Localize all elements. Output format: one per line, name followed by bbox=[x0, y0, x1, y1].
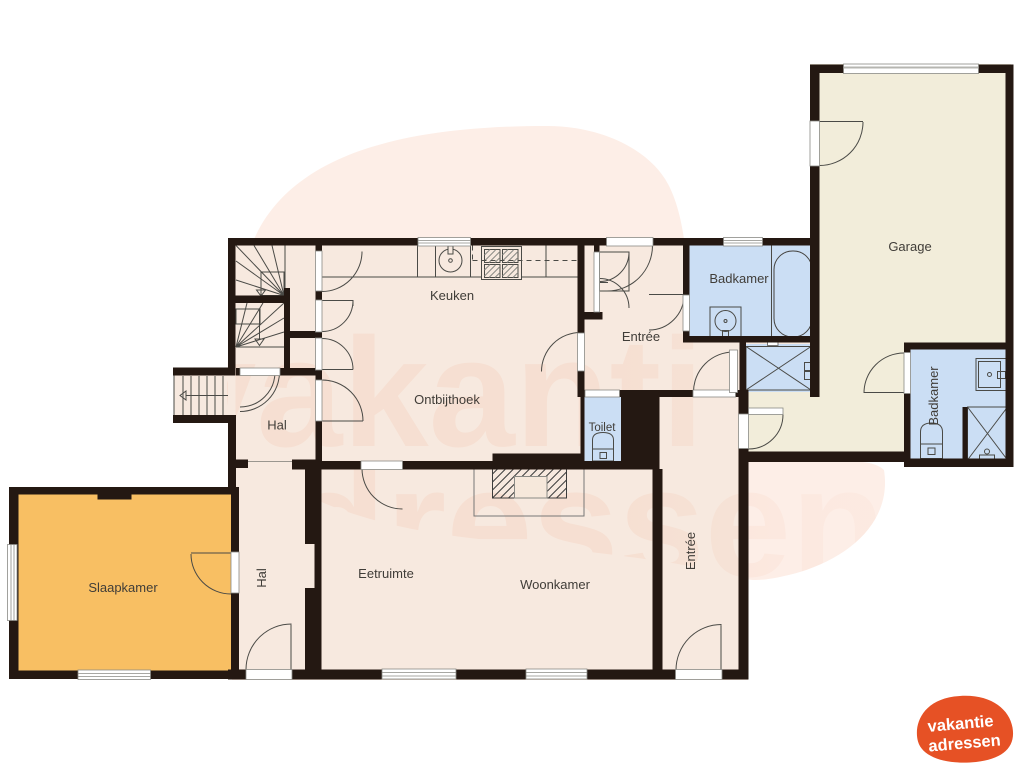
svg-text:Toilet: Toilet bbox=[589, 422, 617, 434]
svg-text:Ontbijthoek: Ontbijthoek bbox=[414, 392, 480, 407]
svg-text:Hal: Hal bbox=[254, 568, 269, 588]
svg-text:Badkamer: Badkamer bbox=[709, 271, 769, 286]
svg-text:Hal: Hal bbox=[267, 418, 287, 433]
svg-text:Keuken: Keuken bbox=[430, 288, 474, 303]
svg-text:Slaapkamer: Slaapkamer bbox=[88, 580, 158, 595]
svg-text:Garage: Garage bbox=[888, 239, 931, 254]
svg-text:Entrée: Entrée bbox=[683, 532, 698, 570]
svg-text:Woonkamer: Woonkamer bbox=[520, 577, 591, 592]
svg-text:Badkamer: Badkamer bbox=[926, 366, 941, 426]
svg-text:Eetruimte: Eetruimte bbox=[358, 566, 414, 581]
svg-text:Entrée: Entrée bbox=[622, 329, 660, 344]
